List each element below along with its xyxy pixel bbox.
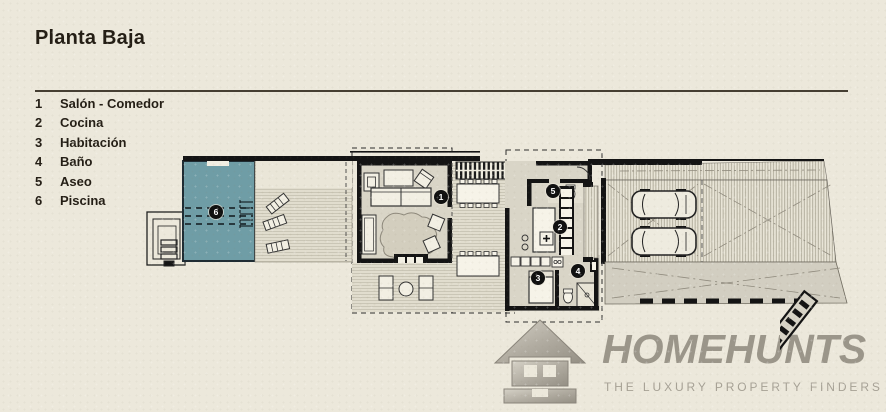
- entry-strip: [583, 182, 598, 262]
- living-room: [357, 161, 452, 267]
- room-marker-6: 6: [209, 205, 223, 219]
- coffee-table: [384, 170, 413, 186]
- chaise: [362, 215, 376, 254]
- legend-num: 1: [35, 94, 60, 113]
- sofa-icon: [371, 188, 431, 206]
- legend-label: Baño: [60, 152, 93, 171]
- kitchen: [505, 161, 592, 263]
- washer: [552, 257, 563, 267]
- legend-num: 5: [35, 172, 60, 191]
- legend-item-salon: 1Salón - Comedor: [35, 94, 164, 113]
- room-marker-4: 4: [571, 264, 585, 278]
- divider-line: [35, 90, 848, 92]
- legend-item-cocina: 2Cocina: [35, 113, 164, 132]
- floor-plan-page: Planta Baja 1Salón - Comedor 2Cocina 3Ha…: [0, 0, 886, 412]
- page-title: Planta Baja: [35, 27, 145, 50]
- legend-label: Salón - Comedor: [60, 94, 164, 113]
- room-marker-3: 3: [531, 271, 545, 285]
- round-table: [399, 282, 413, 296]
- house-icon: [492, 317, 590, 412]
- legend-label: Cocina: [60, 113, 103, 132]
- legend-num: 4: [35, 152, 60, 171]
- kitchen-island: [533, 208, 555, 252]
- car-icon: [632, 189, 696, 220]
- room-marker-2: 2: [553, 220, 567, 234]
- legend-label: Aseo: [60, 172, 92, 191]
- top-wall: [183, 151, 480, 161]
- legend-label: Piscina: [60, 191, 106, 210]
- legend-label: Habitación: [60, 133, 126, 152]
- legend-num: 2: [35, 113, 60, 132]
- room-marker-5: 5: [546, 184, 560, 198]
- dining-table: [457, 252, 499, 277]
- legend-num: 3: [35, 133, 60, 152]
- dining-table: [457, 180, 499, 208]
- pool-skimmer: [207, 161, 229, 166]
- pool-deck: [255, 161, 352, 262]
- car-icon: [632, 226, 696, 257]
- legend-num: 6: [35, 191, 60, 210]
- room-marker-1: 1: [434, 190, 448, 204]
- terrace-chair: [379, 276, 393, 300]
- garden-steps: [780, 283, 880, 383]
- terrace-chair: [419, 276, 433, 300]
- carport: [588, 159, 836, 264]
- pool-entry-steps: [147, 212, 185, 266]
